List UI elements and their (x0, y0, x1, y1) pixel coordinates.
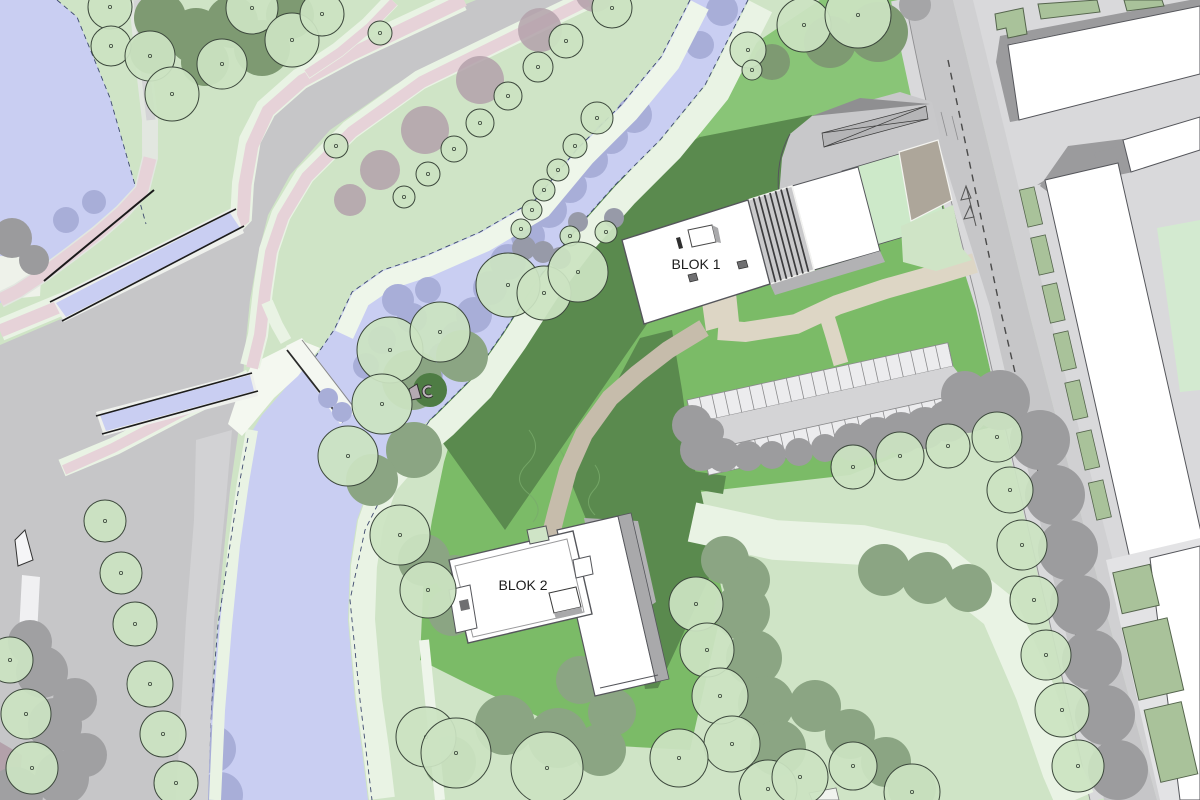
svg-text:BLOK 1: BLOK 1 (671, 256, 720, 272)
svg-text:BLOK 2: BLOK 2 (498, 577, 547, 593)
